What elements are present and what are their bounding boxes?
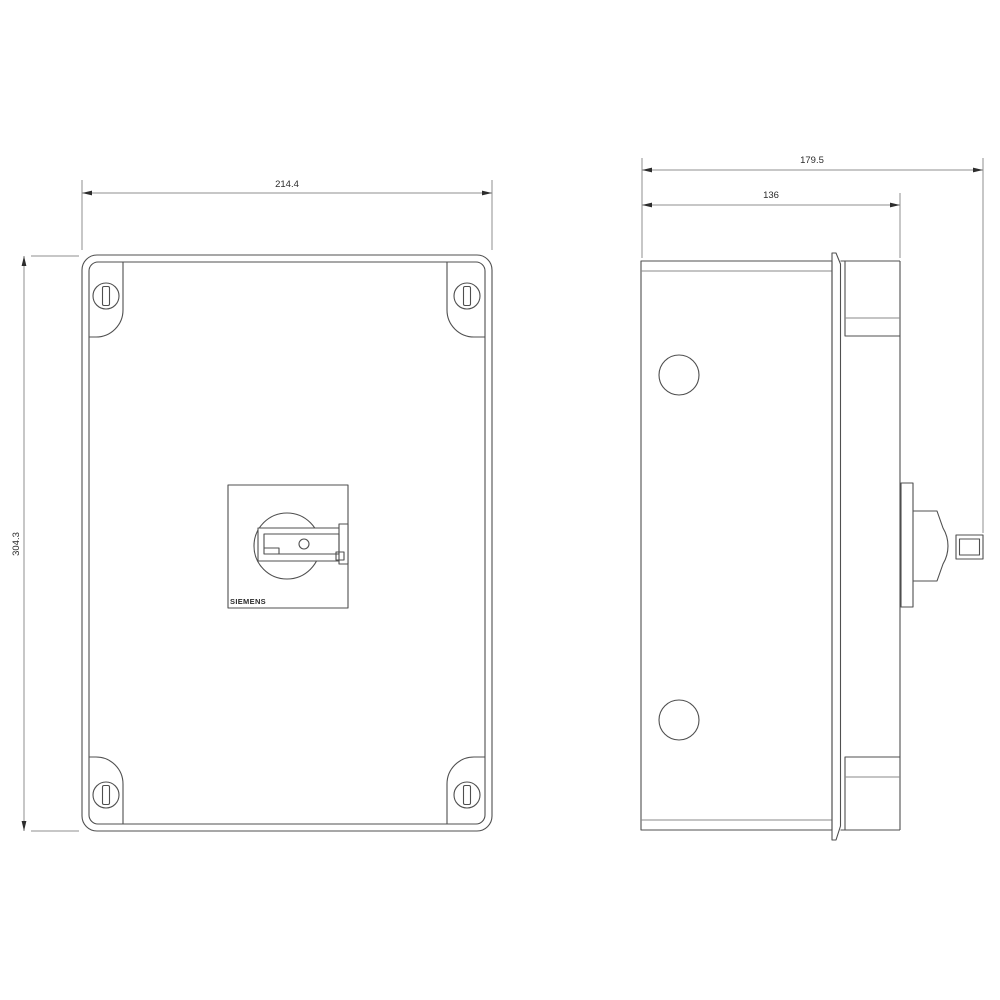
arrowhead-left bbox=[642, 168, 652, 173]
switch-assembly-side bbox=[901, 483, 983, 607]
cover-boss-top bbox=[845, 261, 900, 336]
dim-value: 214.4 bbox=[275, 179, 299, 190]
mounting-hole-top bbox=[659, 355, 699, 395]
corner-screw bbox=[454, 782, 480, 808]
corner-screw bbox=[93, 283, 119, 309]
arrowhead-left bbox=[642, 203, 652, 208]
screw-slot bbox=[103, 287, 110, 306]
handle-hub-profile bbox=[913, 511, 948, 581]
arrowhead-right bbox=[482, 191, 492, 196]
arrowhead-right bbox=[890, 203, 900, 208]
side-view bbox=[641, 253, 983, 840]
technical-drawing: SIEMENS bbox=[0, 0, 1000, 1000]
cover-boss-bottom bbox=[845, 757, 900, 830]
dim-value: 136 bbox=[763, 190, 779, 201]
cover-lip-profile bbox=[832, 253, 841, 840]
front-view: SIEMENS bbox=[82, 255, 492, 831]
dim-value: 304.3 bbox=[11, 532, 22, 556]
extension-lines bbox=[82, 180, 492, 250]
corner-screw bbox=[454, 283, 480, 309]
rotary-handle bbox=[258, 528, 347, 561]
drawing-sheet: SIEMENS bbox=[0, 0, 1000, 1000]
dim-value: 179.5 bbox=[800, 155, 824, 166]
corner-screw bbox=[93, 782, 119, 808]
arrowhead-bottom bbox=[22, 821, 27, 831]
switch-assembly-front: SIEMENS bbox=[228, 485, 348, 608]
dim-front-width: 214.4 bbox=[82, 179, 492, 250]
corner-pocket-top-left bbox=[89, 262, 123, 337]
extension-lines bbox=[642, 158, 983, 533]
dim-side-depth-overall: 179.5 bbox=[642, 155, 983, 533]
extension-lines bbox=[31, 256, 79, 831]
screw-slot bbox=[103, 786, 110, 805]
screw-slot bbox=[464, 287, 471, 306]
arrowhead-right bbox=[973, 168, 983, 173]
base-box-outline bbox=[641, 261, 832, 830]
brand-label: SIEMENS bbox=[230, 599, 266, 606]
dim-side-depth-body: 136 bbox=[642, 190, 900, 258]
screw-slot bbox=[464, 786, 471, 805]
mounting-hole-bottom bbox=[659, 700, 699, 740]
dim-front-height: 304.3 bbox=[11, 256, 79, 831]
switch-plate-side bbox=[901, 483, 913, 607]
arrowhead-top bbox=[22, 256, 27, 266]
arrowhead-left bbox=[82, 191, 92, 196]
